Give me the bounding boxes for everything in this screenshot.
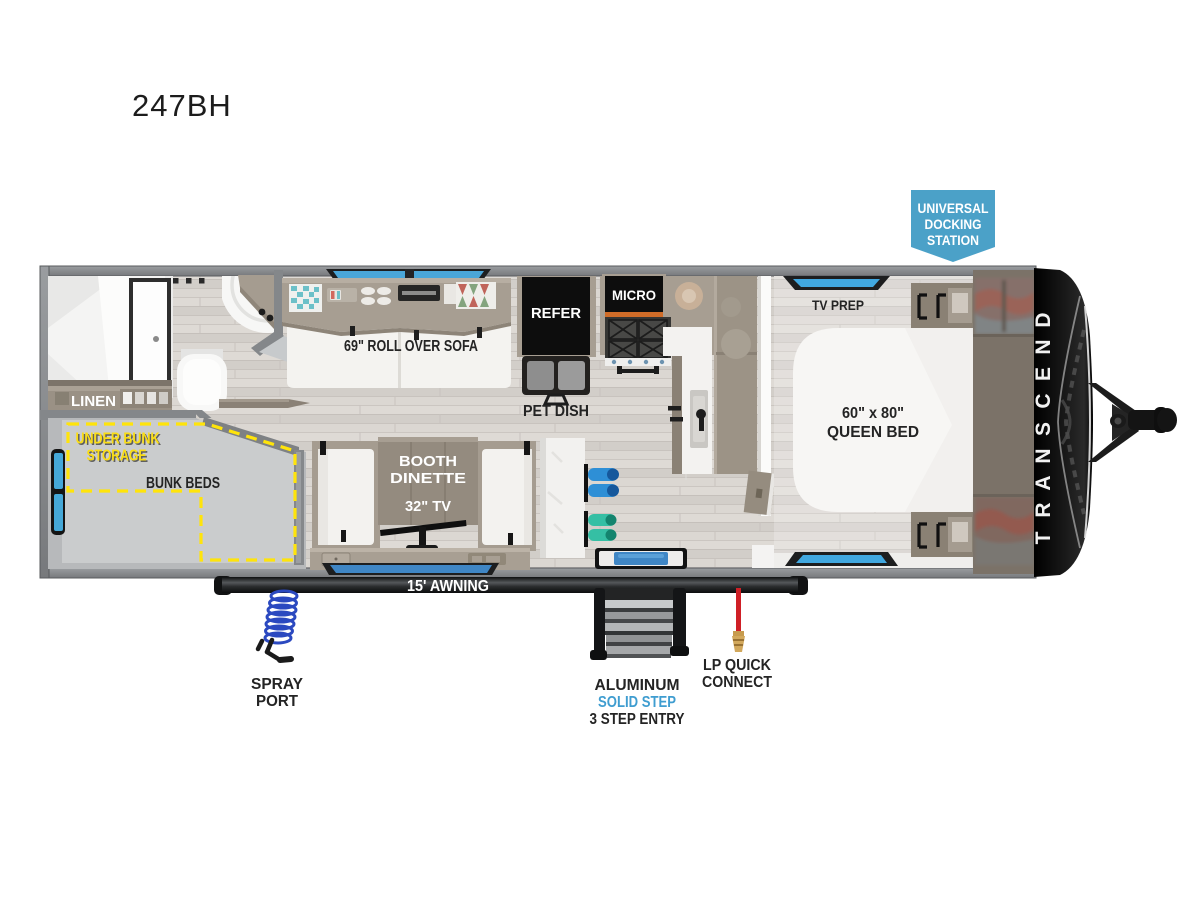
svg-text:R: R — [1032, 502, 1055, 517]
svg-text:PORT: PORT — [256, 693, 299, 710]
svg-text:PET DISH: PET DISH — [523, 403, 589, 420]
svg-text:C: C — [1032, 393, 1055, 408]
svg-text:69" ROLL OVER SOFA: 69" ROLL OVER SOFA — [344, 338, 478, 355]
svg-text:15' AWNING: 15' AWNING — [407, 578, 489, 595]
svg-text:MICRO: MICRO — [612, 287, 656, 303]
svg-text:247BH: 247BH — [132, 88, 232, 123]
svg-text:LP QUICK: LP QUICK — [703, 657, 772, 674]
svg-text:STATION: STATION — [927, 232, 979, 248]
svg-text:60" x 80": 60" x 80" — [842, 405, 904, 422]
svg-text:UNDER BUNK: UNDER BUNK — [76, 431, 161, 448]
svg-text:BOOTH: BOOTH — [399, 453, 457, 470]
svg-text:T: T — [1032, 531, 1055, 544]
svg-text:DINETTE: DINETTE — [390, 470, 466, 487]
svg-text:ALUMINUM: ALUMINUM — [595, 677, 680, 694]
svg-text:S: S — [1032, 422, 1055, 436]
svg-text:3 STEP ENTRY: 3 STEP ENTRY — [590, 711, 686, 728]
svg-text:UNIVERSAL: UNIVERSAL — [918, 200, 989, 216]
svg-text:SOLID STEP: SOLID STEP — [598, 694, 676, 711]
svg-text:N: N — [1032, 448, 1055, 463]
svg-text:A: A — [1032, 475, 1055, 490]
svg-text:32" TV: 32" TV — [405, 498, 451, 515]
svg-text:SPRAY: SPRAY — [251, 676, 304, 693]
svg-text:CONNECT: CONNECT — [702, 674, 772, 691]
svg-text:D: D — [1032, 312, 1055, 327]
svg-text:E: E — [1032, 367, 1055, 381]
svg-text:DOCKING: DOCKING — [925, 216, 982, 232]
svg-text:BUNK BEDS: BUNK BEDS — [146, 475, 220, 492]
svg-text:TV PREP: TV PREP — [812, 297, 864, 313]
svg-text:LINEN: LINEN — [71, 394, 116, 410]
svg-text:QUEEN BED: QUEEN BED — [827, 424, 919, 441]
svg-text:N: N — [1032, 339, 1055, 354]
svg-text:REFER: REFER — [531, 305, 581, 322]
svg-text:STORAGE: STORAGE — [87, 448, 147, 465]
